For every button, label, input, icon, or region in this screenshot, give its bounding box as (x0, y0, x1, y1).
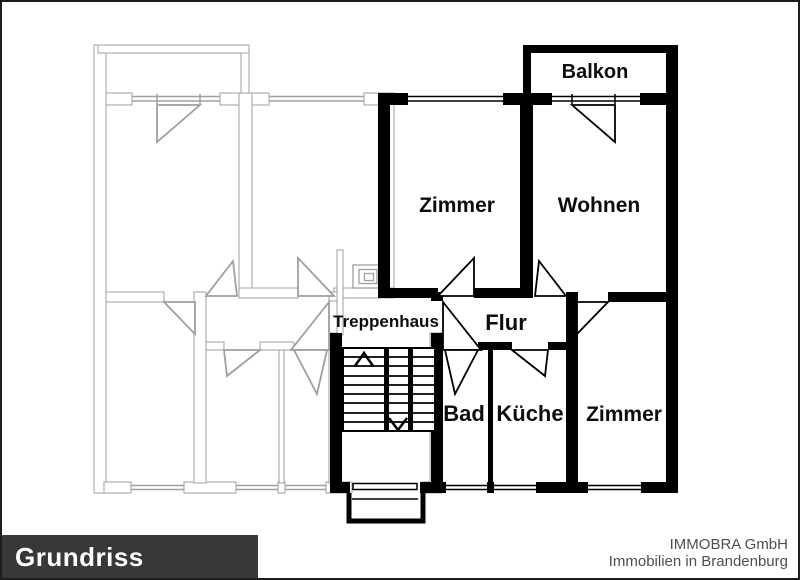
main-apartment (330, 45, 678, 521)
door-swing (438, 258, 474, 296)
wall-segment (608, 292, 666, 302)
floor-plan-svg: Balkon Zimmer Wohnen Treppenhaus Flur Ba… (0, 0, 800, 580)
door-swing (206, 261, 237, 296)
room-label-zimmer-top: Zimmer (419, 194, 495, 217)
stairwell-wall (330, 333, 342, 483)
balcony-wall (523, 45, 531, 100)
wall-segment (94, 45, 106, 493)
company-name: IMMOBRA GmbH (609, 536, 788, 553)
door-swing (512, 350, 548, 376)
room-label-bad: Bad (443, 401, 485, 426)
wall-segment (641, 482, 668, 493)
wall-segment (104, 482, 131, 493)
door-swing (224, 350, 260, 376)
wall-segment (520, 93, 533, 298)
room-label-balkon: Balkon (562, 61, 629, 83)
wall-segment (488, 350, 493, 483)
door-swing (298, 258, 334, 296)
wall-segment (260, 342, 294, 350)
room-label-kueche: Küche (496, 401, 563, 426)
door-swing (164, 302, 195, 334)
wall-segment (474, 288, 533, 298)
wall-segment (184, 482, 236, 493)
wall-segment (239, 93, 252, 298)
wall-segment (278, 482, 285, 493)
footer-title-bar: Grundriss (0, 535, 258, 580)
wall-segment (536, 482, 588, 493)
wall-segment (666, 45, 678, 493)
wall-segment (420, 482, 446, 493)
door-swing (445, 350, 478, 394)
plan-title: Grundriss (0, 542, 144, 573)
building-entrance (349, 484, 423, 522)
door-swing (535, 261, 566, 296)
room-label-treppenhaus: Treppenhaus (333, 312, 439, 331)
wall-segment (106, 292, 164, 302)
door-swing (294, 350, 327, 394)
wall-segment (478, 342, 512, 350)
company-location: Immobilien in Brandenburg (609, 553, 788, 570)
wall-segment (239, 288, 298, 298)
door-swing (577, 302, 608, 334)
company-block: IMMOBRA GmbH Immobilien in Brandenburg (609, 536, 788, 570)
wall-segment (330, 482, 350, 493)
balcony-door-swing (157, 105, 200, 142)
room-label-flur: Flur (485, 310, 527, 335)
wall-segment (487, 482, 494, 493)
balcony-wall (523, 45, 674, 53)
balcony-door-swing (572, 105, 615, 142)
room-label-zimmer-bottom: Zimmer (586, 403, 662, 426)
entrance-porch (349, 493, 423, 521)
room-label-wohnen: Wohnen (558, 194, 640, 217)
wall-segment (378, 288, 438, 298)
wall-segment (378, 93, 390, 298)
wall-segment (548, 342, 566, 350)
wall-segment (279, 350, 284, 483)
wall-segment (206, 342, 224, 350)
staircase (343, 348, 435, 431)
door-swing (443, 302, 481, 350)
floor-plan-page: Balkon Zimmer Wohnen Treppenhaus Flur Ba… (0, 0, 800, 580)
entrance-door (353, 484, 417, 490)
balcony-wall (98, 45, 249, 53)
door-swing (291, 302, 329, 350)
